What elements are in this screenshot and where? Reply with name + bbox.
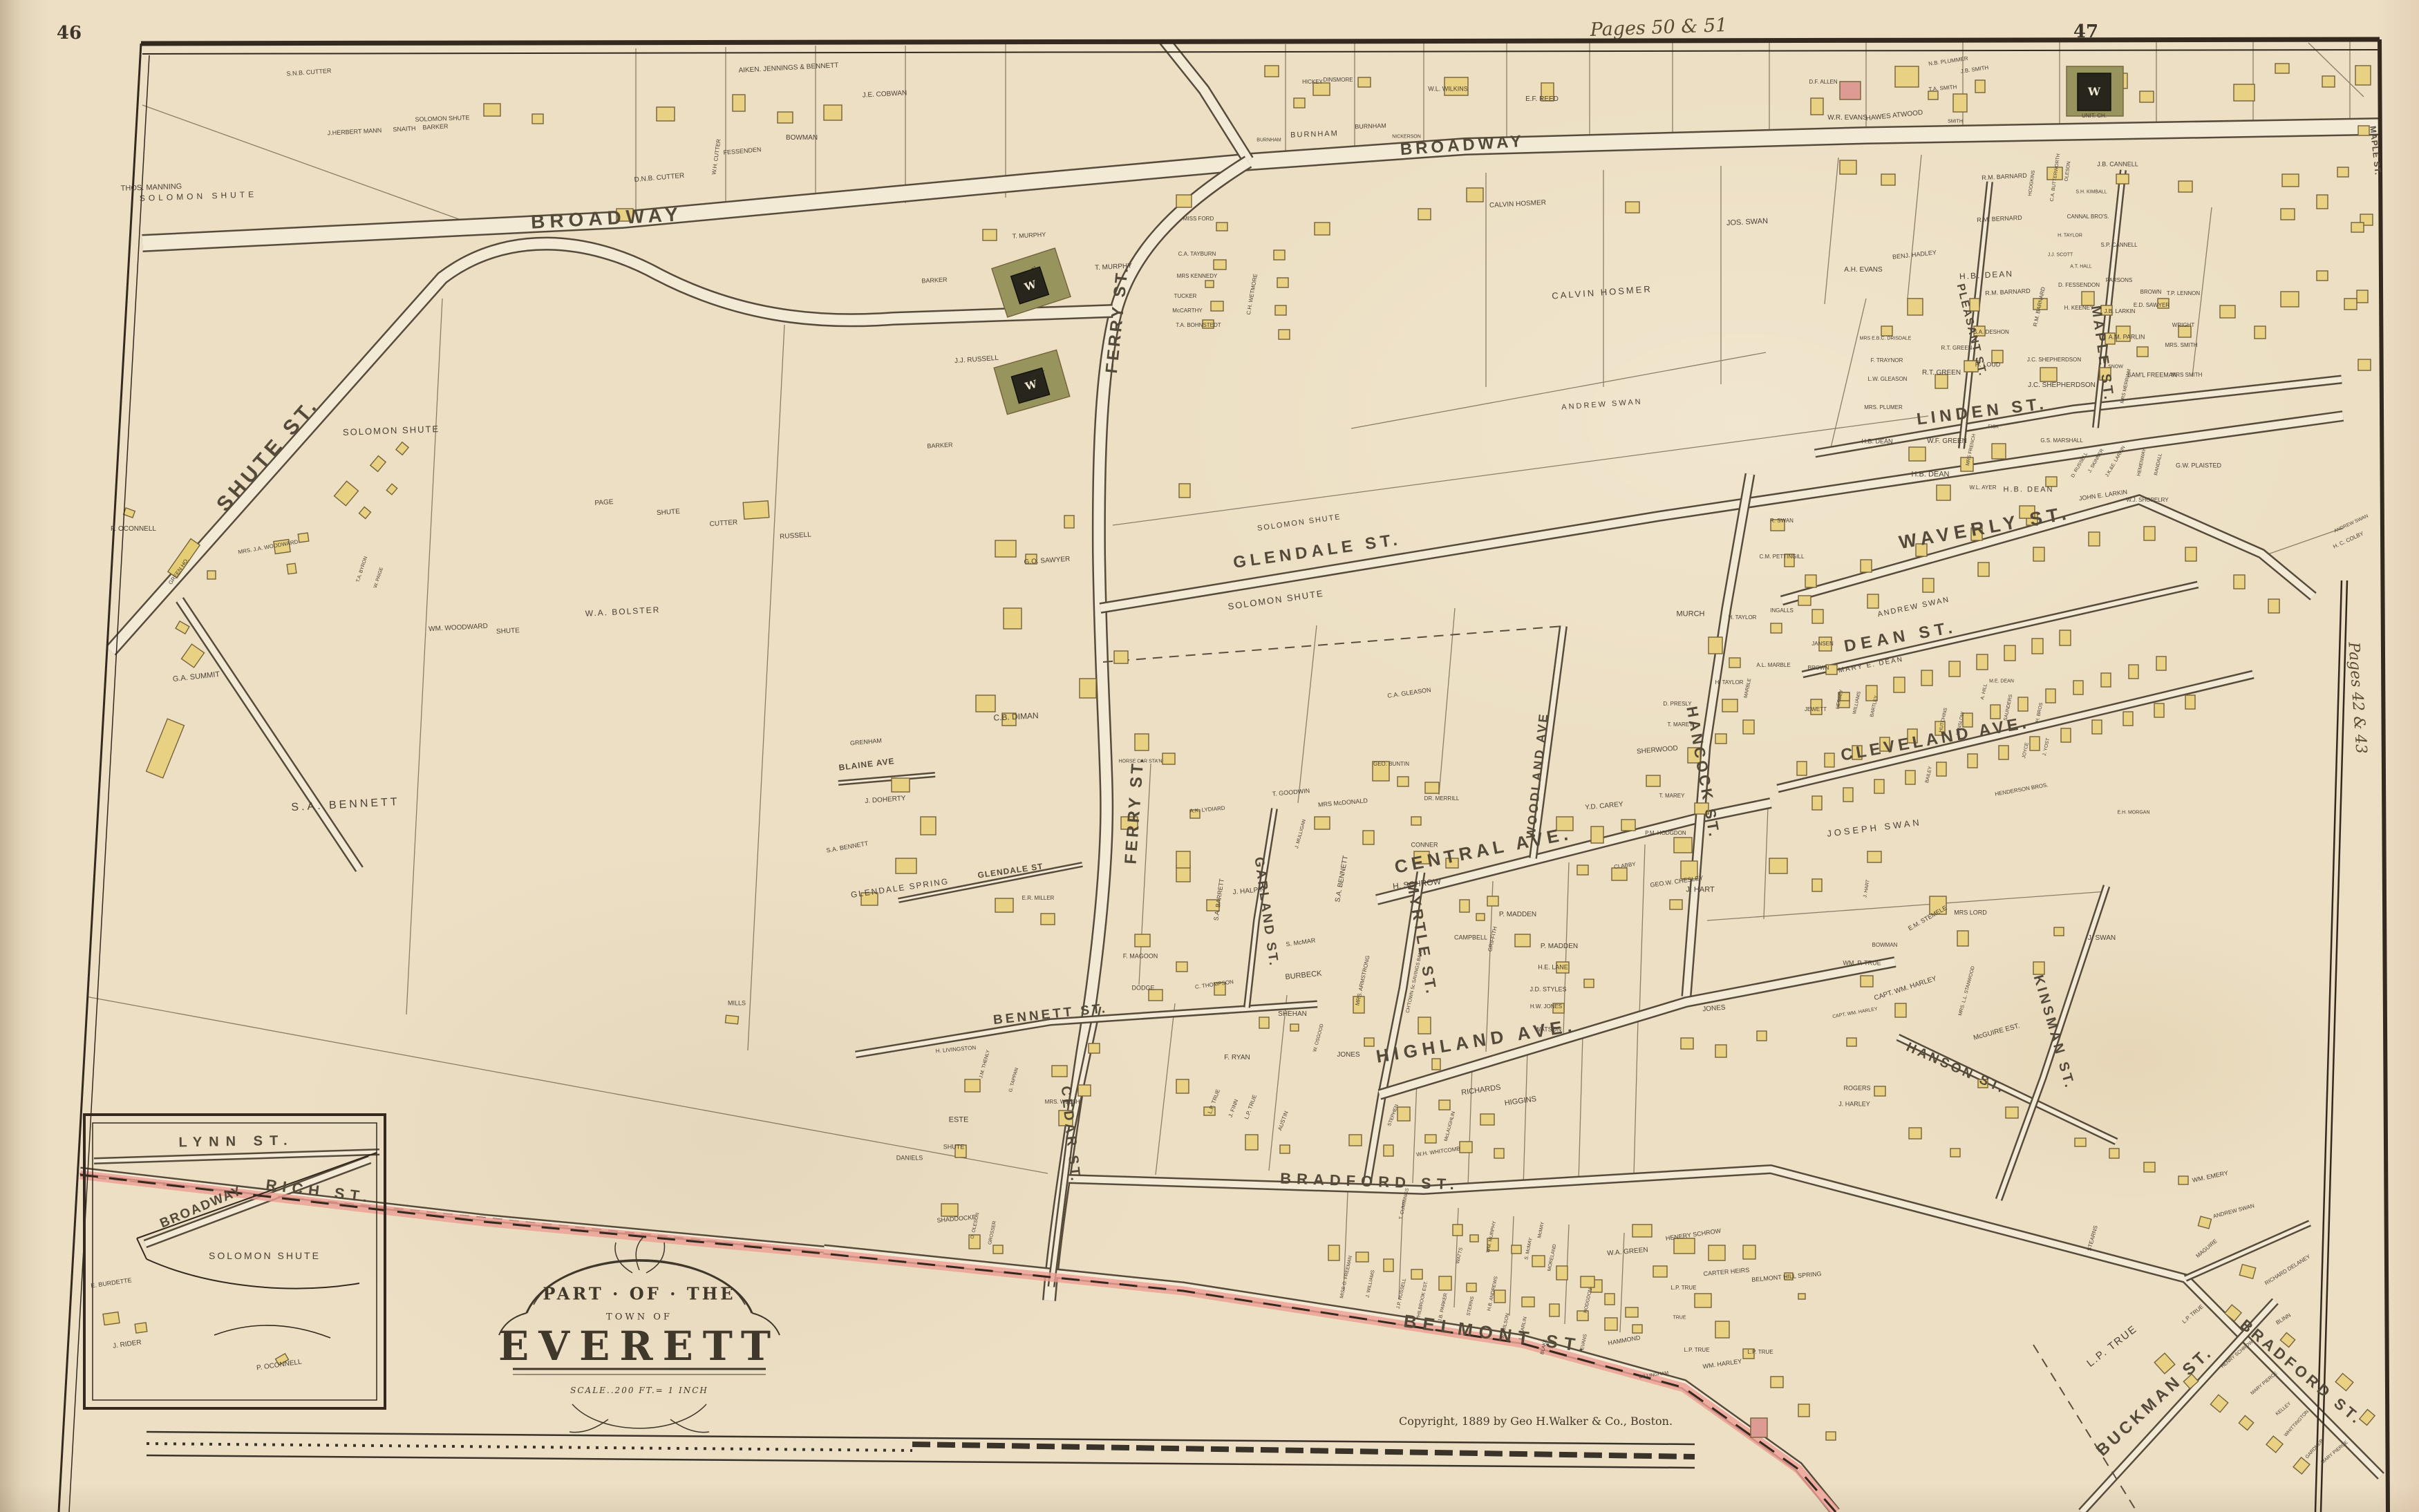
- owner-label: MAGUIRE: [2195, 1238, 2219, 1259]
- owner-label: GLENDALE SPRING: [850, 877, 950, 899]
- owner-label: H.B. DEAN: [1959, 270, 2014, 281]
- owner-label: A.H. EVANS: [1844, 267, 1882, 274]
- owner-label: W.L. AYER: [1970, 485, 1997, 491]
- owner-label: SHUTE: [496, 627, 520, 636]
- owner-label: ANDREW SWAN: [1561, 398, 1643, 411]
- owner-label: HERSEY: [1836, 689, 1845, 710]
- owner-label: J.B. LARKIN: [2105, 309, 2136, 314]
- street-label: BRADFORD ST.: [2237, 1317, 2366, 1428]
- owner-label: SAM'L FREEMAN: [2127, 372, 2177, 379]
- owner-label: BAILEY: [1925, 766, 1933, 783]
- owner-label: GRENHAM: [850, 738, 883, 747]
- owner-label: WATTS: [1456, 1247, 1464, 1265]
- owner-label: SNOW: [2108, 365, 2123, 370]
- owner-label: STEARNS: [2087, 1225, 2099, 1252]
- owner-label: MRS. SMITH: [2165, 343, 2197, 348]
- owner-label: MRS KENNEDY: [1177, 274, 1218, 279]
- owner-label: MARBLE: [1744, 678, 1753, 699]
- owner-label: E.F. REED: [1525, 96, 1559, 103]
- owner-label: INGALLS: [1770, 608, 1794, 614]
- owner-label: JOS. SWAN: [1726, 218, 1769, 227]
- owner-label: C.H. WETMORE: [1246, 274, 1259, 315]
- owner-label: McCARTHY: [1172, 308, 1202, 314]
- owner-label: JONES: [1702, 1005, 1726, 1014]
- owner-label: Y.D. CAREY: [1585, 802, 1623, 812]
- owner-label: S.P. CANNELL: [2100, 243, 2137, 248]
- owner-label: C. THOMPSON: [1195, 979, 1234, 990]
- owner-label: G.W. PLAISTED: [2176, 463, 2221, 469]
- owner-label: THOS. MANNING: [121, 183, 182, 193]
- street-label: BROADWAY: [158, 1184, 245, 1230]
- owner-label: R.T. GREEN: [1922, 370, 1961, 377]
- owner-label: T. MAREY: [1659, 793, 1685, 799]
- owner-label: S. McMAY: [1524, 1237, 1534, 1260]
- owner-label: BURNHAM: [1355, 123, 1386, 131]
- street-label: DEAN ST.: [1843, 619, 1958, 655]
- owner-label: S.A. BENNETT: [291, 797, 400, 813]
- owner-label: SHERWOOD: [1637, 745, 1678, 755]
- owner-label: CARTER HEIRS: [1703, 1267, 1749, 1278]
- owner-label: J. MULLIGAN: [1295, 819, 1307, 849]
- owner-label: H. TAYLOR: [2058, 234, 2082, 238]
- owner-label: WM. MURPHY: [1486, 1220, 1498, 1253]
- owner-label: W.H. WHITCOMB: [1416, 1146, 1460, 1158]
- owner-label: W.L. WILKINS: [1428, 86, 1468, 93]
- owner-label: MRS. WELSH: [1045, 1099, 1080, 1105]
- labels-layer: 4647Pages 50 & 51Pages 42 & 43Copyright,…: [0, 0, 2419, 1512]
- owner-label: MURCH: [1677, 611, 1705, 618]
- owner-label: WHITTINGTON: [2284, 1409, 2310, 1437]
- owner-label: CLABBY: [1614, 862, 1636, 870]
- owner-label: BURNHAM: [1290, 130, 1339, 139]
- owner-label: McLAUGHLIN: [1444, 1111, 1456, 1142]
- owner-label: STERNS: [1467, 1296, 1476, 1316]
- owner-label: UNIT. CH.: [2082, 113, 2107, 119]
- owner-label: MRS. PLUMER: [1864, 405, 1903, 410]
- street-label: LINDEN ST.: [1916, 395, 2049, 428]
- owner-label: HICKEY: [1302, 79, 1323, 85]
- owner-label: HEMENWAY: [2136, 448, 2147, 476]
- owner-label: WM. P. TRUE: [1843, 961, 1881, 967]
- owner-label: W.A. BOLSTER: [585, 605, 660, 618]
- owner-label: J.J. RUSSELL: [954, 355, 999, 365]
- street-label: WOODLAND AVE: [1524, 712, 1550, 840]
- street-label: CLEVELAND AVE.: [1840, 715, 2031, 764]
- owner-label: J.D. STYLES: [1529, 987, 1566, 993]
- owner-label: SOLOMON SHUTE: [1257, 513, 1342, 533]
- owner-label: J.E. COBWAN: [862, 90, 907, 99]
- owner-label: F. MAGOON: [1123, 954, 1158, 960]
- owner-label: L.P. TRUE: [2085, 1323, 2139, 1369]
- owner-label: F. RYAN: [1224, 1055, 1250, 1061]
- owner-label: J. HART: [1863, 879, 1870, 898]
- owner-label: McMAY: [1537, 1222, 1545, 1239]
- owner-label: SNAITH: [393, 126, 415, 133]
- street-label: MAPLE ST.: [2369, 126, 2382, 176]
- owner-label: L.P. TRUE: [1684, 1348, 1709, 1353]
- owner-label: T.A. SMITH: [1928, 84, 1957, 93]
- street-label: BELMONT ST.: [1402, 1312, 1591, 1356]
- owner-label: P.M. HODGDON: [1645, 831, 1686, 836]
- owner-label: L.P. TRUE: [1244, 1094, 1258, 1120]
- owner-label: HORSE CAR STA'N: [1118, 759, 1162, 764]
- owner-label: P. OCONNELL: [256, 1359, 303, 1372]
- owner-label: R.T. GREEN: [1941, 346, 1973, 351]
- owner-label: MRS. L.L. STANWOOD: [1958, 965, 1976, 1016]
- street-label: GLENDALE ST.: [1232, 531, 1402, 571]
- street-label: KINSMAN ST.: [2031, 974, 2078, 1092]
- owner-label: C.B. DIMAN: [993, 711, 1039, 721]
- owner-label: MRS E.B.C. DRISDALE: [1860, 337, 1912, 341]
- owner-label: G.S. MARSHALL: [2040, 438, 2082, 444]
- owner-label: FISK: [1988, 425, 1999, 430]
- copyright-note: Copyright, 1889 by Geo H.Walker & Co., B…: [1399, 1416, 1673, 1427]
- owner-label: RICHARD DELANEY: [2264, 1254, 2312, 1286]
- owner-label: C.A. BUTTERWORTH: [2050, 153, 2062, 202]
- owner-label: SHUTE: [943, 1144, 965, 1151]
- owner-label: BROWN: [1808, 665, 1829, 671]
- owner-label: W.J. SHOPELRY: [2126, 498, 2168, 503]
- owner-label: S.A. DESHON: [1973, 330, 2009, 335]
- owner-label: BURNHAM: [1256, 138, 1281, 143]
- owner-label: MARY PIERCE: [2250, 1371, 2278, 1396]
- owner-label: MRS MERRIAM: [2120, 369, 2131, 404]
- owner-label: DANIELS: [896, 1155, 923, 1162]
- owner-label: DODGE: [1131, 985, 1154, 992]
- owner-label: AUSTIN: [1277, 1111, 1290, 1131]
- owner-label: BARTLEY: [1870, 695, 1879, 718]
- owner-label: L.P. TRUE: [1747, 1350, 1773, 1355]
- owner-label: W.A. GREEN: [1607, 1247, 1648, 1257]
- owner-label: J. FINN: [1228, 1099, 1240, 1118]
- owner-label: C.A. TAYBURN: [1178, 252, 1216, 257]
- owner-label: A.L. MARBLE: [1756, 663, 1790, 668]
- owner-label: MRS. J.A. WOODWARD: [238, 539, 299, 555]
- owner-label: WATSON: [1535, 1027, 1562, 1033]
- owner-label: A.K. LYDIARD: [1189, 806, 1225, 814]
- owner-label: D. RUSSELL: [2071, 452, 2089, 479]
- owner-label: HENRY SCHROW: [2220, 1340, 2254, 1370]
- owner-label: ANDREW SWAN: [2212, 1203, 2255, 1220]
- owner-label: CUTTER: [709, 520, 737, 529]
- owner-label: R. SWAN: [1770, 518, 1794, 524]
- owner-label: D. FESSENDON: [2058, 283, 2100, 288]
- owner-label: McGUIRE EST.: [1973, 1023, 2020, 1041]
- owner-label: BARKER: [422, 124, 448, 131]
- owner-label: BOWMAN: [786, 135, 818, 142]
- street-label: LYNN ST.: [178, 1134, 294, 1150]
- owner-label: P. OCONNELL: [111, 526, 156, 533]
- owner-label: H. LOUD: [1975, 362, 2001, 368]
- owner-label: GREEN HO.: [168, 557, 190, 585]
- owner-label: M.E. DEAN: [1989, 679, 2014, 684]
- owner-label: PAGE: [594, 499, 614, 507]
- street-label: RICH ST.: [265, 1178, 373, 1206]
- owner-label: S. McMAR: [1286, 938, 1316, 948]
- owner-label: W. OSGOOD: [1312, 1023, 1325, 1052]
- owner-label: R.M. BARNARD: [1982, 173, 2027, 181]
- owner-label: J. RIDER: [113, 1339, 142, 1350]
- owner-label: S.N.B. CUTTER: [286, 68, 331, 77]
- owner-label: WILLIAMS: [1852, 691, 1862, 715]
- street-label: GLENDALE ST: [977, 862, 1044, 879]
- owner-label: MRS McDONALD: [1318, 797, 1368, 808]
- street-label: HANSON ST.: [1904, 1041, 2007, 1096]
- owner-label: BARKER: [927, 442, 952, 450]
- owner-label: BARKER: [921, 277, 947, 285]
- owner-label: H. LIVINGSTON: [935, 1045, 976, 1054]
- owner-label: RUSSELL: [780, 531, 811, 540]
- owner-label: CANNAL BRO'S.: [2067, 214, 2109, 220]
- owner-label: BOWMAN: [1872, 943, 1898, 948]
- owner-label: E.M. STEMELE: [1907, 905, 1948, 932]
- owner-label: W.R. EVANS: [1827, 115, 1867, 122]
- owner-label: D.N.B. CUTTER: [634, 173, 684, 184]
- street-label: MYRTLE ST.: [1404, 880, 1440, 997]
- owner-label: J.B. CANNELL: [2097, 162, 2138, 168]
- owner-label: HENDERSON BROS.: [1995, 782, 2049, 797]
- margin-note: Pages 50 & 51: [1590, 16, 1727, 39]
- owner-label: R.M. BERNARD: [1977, 215, 2022, 223]
- owner-label: H. TAYLOR: [1715, 680, 1744, 686]
- owner-label: TUCKER: [1174, 294, 1197, 299]
- street-label: SHUTE ST.: [214, 394, 323, 516]
- owner-label: SHEHAN: [1278, 1011, 1307, 1018]
- owner-label: MRS. ARMSTRONG: [1355, 955, 1371, 1006]
- street-label: FERRY ST.: [1123, 755, 1147, 865]
- owner-label: SOLOMON SHUTE: [415, 115, 469, 123]
- street-label: BRADFORD ST.: [1280, 1171, 1460, 1192]
- owner-label: HAWES ATWOOD: [1865, 110, 1923, 123]
- street-label: GARLAND ST.: [1252, 856, 1280, 968]
- owner-label: H.B. DEAN: [1861, 439, 1892, 445]
- owner-label: OLESON: [2064, 161, 2072, 182]
- owner-label: L.P. TRUE: [1207, 1088, 1221, 1115]
- page-number: 47: [2073, 23, 2098, 41]
- owner-label: S.A. BENNETT: [1335, 855, 1350, 903]
- owner-label: SMITH: [1948, 120, 1963, 124]
- owner-label: H. TAYLOR: [1729, 615, 1757, 621]
- owner-label: WRIGHT: [2172, 323, 2194, 328]
- owner-label: JONES: [1337, 1052, 1359, 1059]
- owner-label: E.R. MILLER: [1022, 896, 1055, 901]
- owner-label: MARY PIERCE: [2320, 1440, 2349, 1465]
- owner-label: J. HART: [1686, 887, 1714, 894]
- owner-label: D.F. ALLEN: [1809, 79, 1837, 85]
- owner-label: HODGKINS: [2028, 170, 2036, 196]
- owner-label: STEPHEN: [1387, 1104, 1400, 1126]
- owner-label: S.A. BARRETT: [1213, 878, 1225, 921]
- owner-label: WM. HARLEY: [1702, 1359, 1742, 1370]
- building-glyph: W: [1024, 279, 1038, 292]
- owner-label: AIKEN. JENNINGS & BENNETT: [738, 62, 838, 75]
- owner-label: A.T. HALL: [2070, 265, 2092, 270]
- owner-label: J.P. RUSSELL: [1396, 1278, 1407, 1309]
- owner-label: MRS FRENCH: [1966, 433, 1977, 466]
- owner-label: H.B. DEAN: [1911, 471, 1949, 479]
- owner-label: JANSEN: [1811, 641, 1834, 647]
- owner-label: CALVIN HOSMER: [1552, 284, 1653, 300]
- owner-label: T. CUMMINGS: [1399, 1188, 1410, 1220]
- owner-label: TRUE: [1673, 1316, 1686, 1321]
- owner-label: J. SKINNER: [2087, 448, 2105, 474]
- margin-note: Pages 42 & 43: [2345, 641, 2368, 754]
- owner-label: PARSONS: [2106, 278, 2133, 283]
- owner-label: KELLEY: [2275, 1401, 2293, 1417]
- street-label: BUCKMAN ST.: [2093, 1343, 2216, 1459]
- owner-label: J. HARLEY: [1838, 1102, 1870, 1108]
- owner-label: E.D. SAWYER: [2134, 303, 2169, 308]
- owner-label: H. C. COLBY: [2333, 531, 2365, 549]
- owner-label: HIGGINS: [1504, 1095, 1537, 1107]
- owner-label: J.HERBERT MANN: [327, 127, 382, 136]
- owner-label: L.W. GLEASON: [1868, 377, 1908, 382]
- owner-label: G. TAPPAN: [1008, 1068, 1019, 1093]
- owner-label: A. HILL: [1980, 683, 1988, 700]
- owner-label: W.H. CUTTER: [711, 139, 722, 176]
- owner-label: T. MAREY: [1668, 722, 1693, 728]
- page-number: 46: [57, 24, 82, 42]
- owner-label: L.P. TRUE: [1670, 1285, 1696, 1291]
- owner-label: J. YOST: [2042, 737, 2051, 756]
- owner-label: CAMPBELL: [1454, 935, 1487, 941]
- owner-label: S.H. KIMBALL: [2076, 190, 2107, 195]
- owner-label: L.P. TRUE: [2181, 1304, 2205, 1325]
- owner-label: J.J. SCOTT: [2048, 253, 2073, 258]
- owner-label: GROSSER: [988, 1220, 997, 1245]
- owner-label: JOSEPH SWAN: [1827, 818, 1923, 838]
- owner-label: WM. WOODWARD: [429, 623, 488, 633]
- owner-label: W. PAIGE: [373, 567, 384, 589]
- owner-label: JOYCE: [2022, 742, 2030, 759]
- owner-label: G.A. SUMMIT: [172, 671, 220, 683]
- owner-label: MRS LORD: [1954, 910, 1987, 916]
- owner-label: CAPT. WM. HARLEY: [1874, 976, 1938, 1003]
- owner-label: H.E. LANE: [1538, 965, 1568, 971]
- owner-label: RANDALL: [2154, 453, 2163, 475]
- owner-label: BENJ. HADLEY: [1892, 249, 1937, 261]
- owner-label: T.A. BOHNSTEDT: [1176, 323, 1221, 328]
- owner-label: MARY E. DEAN: [1838, 656, 1904, 674]
- atlas-map-sheet: PART · OF · THE TOWN OF EVERETT SCALE..2…: [0, 0, 2419, 1512]
- owner-label: N.B. PLUMMER: [1928, 56, 1968, 67]
- owner-label: P. MADDEN: [1541, 943, 1578, 950]
- owner-label: T.P. LENNON: [2167, 291, 2200, 296]
- owner-label: MISS O. FREEMAN: [1339, 1256, 1353, 1299]
- owner-label: SHADDOCKE: [936, 1214, 977, 1224]
- owner-label: HENERY SCHROW: [1665, 1228, 1721, 1242]
- owner-label: A.M. PARLIN: [2109, 334, 2145, 341]
- owner-label: BROWN: [2140, 290, 2162, 295]
- owner-label: H.W. JONES: [1530, 1004, 1562, 1010]
- owner-label: ANDREW SWAN: [1877, 596, 1951, 619]
- owner-label: S.A. BENNETT: [826, 840, 869, 854]
- owner-label: E.H. MORGAN: [2117, 811, 2149, 815]
- owner-label: ESTE: [949, 1117, 969, 1124]
- owner-label: J. SWAN: [2088, 935, 2116, 942]
- owner-label: JOHN E. LARKIN: [2078, 489, 2127, 502]
- owner-label: SHUTE: [657, 509, 681, 517]
- owner-label: SOLOMON SHUTE: [1227, 589, 1325, 611]
- owner-label: F. TRAYNOR: [1871, 358, 1903, 363]
- owner-label: D. PRESLY: [1663, 701, 1691, 707]
- owner-label: G.O. SAWYER: [1024, 556, 1070, 567]
- owner-label: SOLOMON SHUTE: [140, 190, 258, 202]
- owner-label: J. DOHERTY: [865, 795, 906, 805]
- owner-label: T. MURPHY: [1013, 231, 1046, 240]
- owner-label: H. SCHROW: [1393, 877, 1442, 890]
- owner-label: FESSENDEN: [723, 147, 762, 156]
- owner-label: J.M. THENLY: [979, 1050, 991, 1079]
- owner-label: DR. MERRILL: [1424, 796, 1460, 802]
- owner-label: MILLS: [728, 1001, 746, 1007]
- owner-label: GEO. BUNTIN: [1373, 762, 1409, 767]
- owner-label: CONNER: [1411, 842, 1438, 849]
- owner-label: J.C. SHEPHERDSON: [2028, 382, 2096, 389]
- owner-label: ROGERS: [1843, 1086, 1870, 1092]
- owner-label: RICHARDS: [1461, 1084, 1501, 1097]
- street-label: FERRY ST.: [1104, 264, 1131, 374]
- owner-label: BELMONT HILL SPRING: [1751, 1271, 1822, 1283]
- owner-label: NICKERSON: [1392, 135, 1421, 140]
- owner-label: H. KEENEY: [2064, 305, 2094, 311]
- owner-label: BURBECK: [1285, 970, 1322, 981]
- owner-label: JEWETT: [1805, 707, 1827, 712]
- owner-label: E. BURDETTE: [91, 1277, 132, 1289]
- owner-label: J.K.&E. LARKIN: [2105, 445, 2126, 478]
- owner-label: BLINN: [2275, 1312, 2292, 1325]
- street-label: BROADWAY: [530, 205, 683, 231]
- owner-label: J. WILLIAMS: [1365, 1269, 1375, 1298]
- street-label: BLAINE AVE: [838, 757, 895, 772]
- owner-label: J.B. SMITH: [1960, 65, 1989, 75]
- building-glyph: W: [2088, 86, 2100, 97]
- owner-label: GARDNER: [2305, 1439, 2325, 1460]
- owner-label: C.A. GLEASON: [1387, 687, 1431, 699]
- owner-label: T. GOODWIN: [1272, 788, 1310, 797]
- street-label: HIGHLAND AVE.: [1375, 1016, 1578, 1066]
- owner-label: MORELAND: [1547, 1244, 1557, 1272]
- owner-label: R.M. BARNARD: [1985, 288, 2031, 296]
- owner-label: ANDREW SWAN: [2333, 513, 2369, 533]
- owner-label: CAPT. WM. HARLEY: [1832, 1007, 1878, 1019]
- owner-label: SOLOMON SHUTE: [343, 424, 440, 437]
- owner-label: J.C. SHEPHERDSON: [2027, 357, 2081, 363]
- owner-label: HODGDON: [1583, 1287, 1593, 1313]
- owner-label: R.M. BARNARD: [2033, 287, 2046, 328]
- owner-label: SOLOMON SHUTE: [209, 1251, 321, 1260]
- building-glyph: W: [1024, 379, 1038, 392]
- owner-label: H. BROS: [2035, 702, 2044, 723]
- owner-label: HAMMOND: [1608, 1334, 1641, 1346]
- owner-label: C.M. PETTINGILL: [1760, 554, 1805, 560]
- owner-label: CALVIN HOSMER: [1489, 200, 1546, 209]
- owner-label: MISS FORD: [1183, 216, 1214, 222]
- street-label: WAVERLY ST.: [1898, 504, 2073, 552]
- owner-label: T.A. BYRON: [356, 556, 369, 583]
- owner-label: H.B. DEAN: [2003, 486, 2053, 494]
- owner-label: GRIFFITH: [1487, 926, 1498, 952]
- street-label: CENTRAL AVE.: [1393, 824, 1574, 876]
- street-label: BENNETT ST.: [992, 1002, 1109, 1027]
- owner-label: W.F. GREEN: [1927, 438, 1967, 445]
- owner-label: WM. EMERY: [2192, 1170, 2229, 1184]
- owner-label: DILLINGHAM: [1639, 1371, 1668, 1380]
- owner-label: P. MADDEN: [1499, 911, 1536, 918]
- owner-label: DINSMORE: [1323, 77, 1353, 83]
- owner-label: H.B. ANDREWS: [1487, 1276, 1498, 1311]
